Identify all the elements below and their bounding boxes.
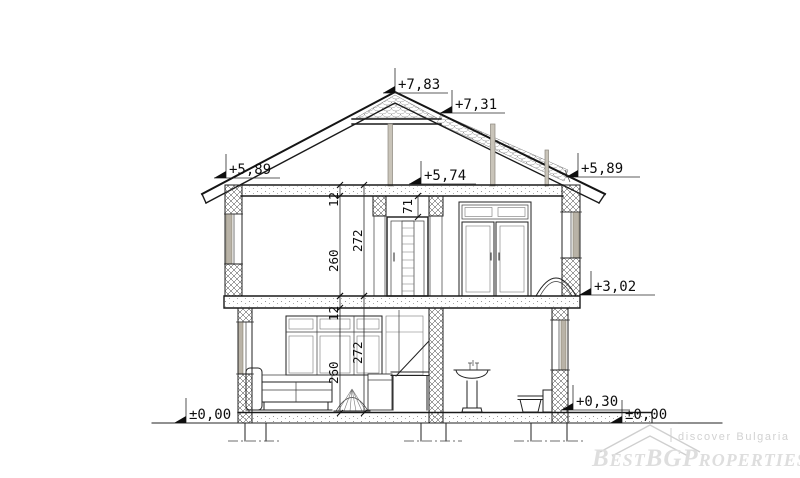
watermark-brand: BestBGProperties	[591, 445, 800, 472]
level-grade-right-value: ±0,00	[625, 407, 667, 423]
watermark-tagline: discover Bulgaria	[678, 431, 790, 443]
upper-french-door	[459, 202, 531, 296]
level-eave-left-value: +5,89	[229, 162, 271, 178]
ground-middle-wall	[429, 308, 443, 423]
dim-ground-clear: 260	[326, 361, 341, 384]
ground-left-wall	[236, 308, 254, 423]
level-marker-ridge: +7,83	[383, 68, 448, 93]
upper-left-window	[226, 214, 232, 264]
transom	[462, 205, 528, 219]
dim-door-head: 71	[400, 193, 421, 220]
dim-door-head-value: 71	[400, 199, 415, 214]
ground-right-window	[561, 320, 566, 370]
level-arrow-icon	[383, 86, 395, 93]
upper-right-window	[573, 212, 579, 258]
level-ceiling-value: +5,74	[424, 168, 466, 184]
level-arrow-icon	[174, 416, 186, 423]
level-eave-right-value: +5,89	[581, 161, 623, 177]
level-arrow-icon	[409, 177, 421, 184]
upper-right-wall	[560, 185, 582, 296]
attic-post-left	[388, 124, 393, 186]
attic-post-small	[545, 150, 549, 186]
ground-left-window	[238, 322, 243, 374]
watermark: discover Bulgaria BestBGProperties	[591, 425, 800, 472]
dim-upper-storey: 272	[350, 229, 365, 252]
level-ridge-value: +7,83	[398, 77, 440, 93]
french-door-handles	[491, 253, 499, 260]
foundations	[228, 423, 584, 441]
level-marker-collar: +7,31	[440, 90, 505, 113]
level-arrow-icon	[440, 106, 452, 113]
level-marker-grade-left: ±0,00	[174, 398, 240, 423]
level-marker-ceiling: +5,74	[409, 161, 476, 184]
level-arrow-icon	[579, 288, 591, 295]
fan-table	[334, 389, 370, 411]
ground-right-wall	[550, 308, 570, 423]
upper-floor-slab	[224, 296, 580, 308]
level-marker-grade-right: ±0,00	[610, 400, 678, 423]
level-ground-floor-value: +0,30	[576, 394, 618, 410]
dim-ground-storey: 272	[350, 341, 365, 364]
upper-left-wall	[224, 185, 243, 296]
attic-post-right	[491, 124, 496, 186]
level-arrow-icon	[214, 171, 226, 178]
dim-upper-clear: 260	[326, 249, 341, 272]
level-marker-upper-floor: +3,02	[579, 271, 655, 295]
level-collar-value: +7,31	[455, 97, 497, 113]
toilet	[518, 390, 552, 412]
dim-chain-upper: 12 260 272	[326, 182, 367, 299]
roof	[202, 92, 605, 203]
pedestal-sink	[454, 360, 490, 412]
ceiling-slab	[241, 185, 563, 196]
level-marker-ground-floor: +0,30	[561, 385, 630, 410]
section-drawing: 12 260 272 71 12 260 272 +7,83 +7,31 +5,…	[0, 0, 800, 478]
dim-upper-slab: 12	[326, 192, 341, 207]
side-block	[368, 374, 392, 410]
level-upper-floor-value: +3,02	[594, 279, 636, 295]
stair-ladder	[402, 221, 414, 296]
sofa	[246, 368, 332, 410]
dim-ground-slab: 12	[326, 306, 341, 321]
level-grade-left-value: ±0,00	[189, 407, 231, 423]
level-marker-eave-right: +5,89	[566, 153, 640, 177]
